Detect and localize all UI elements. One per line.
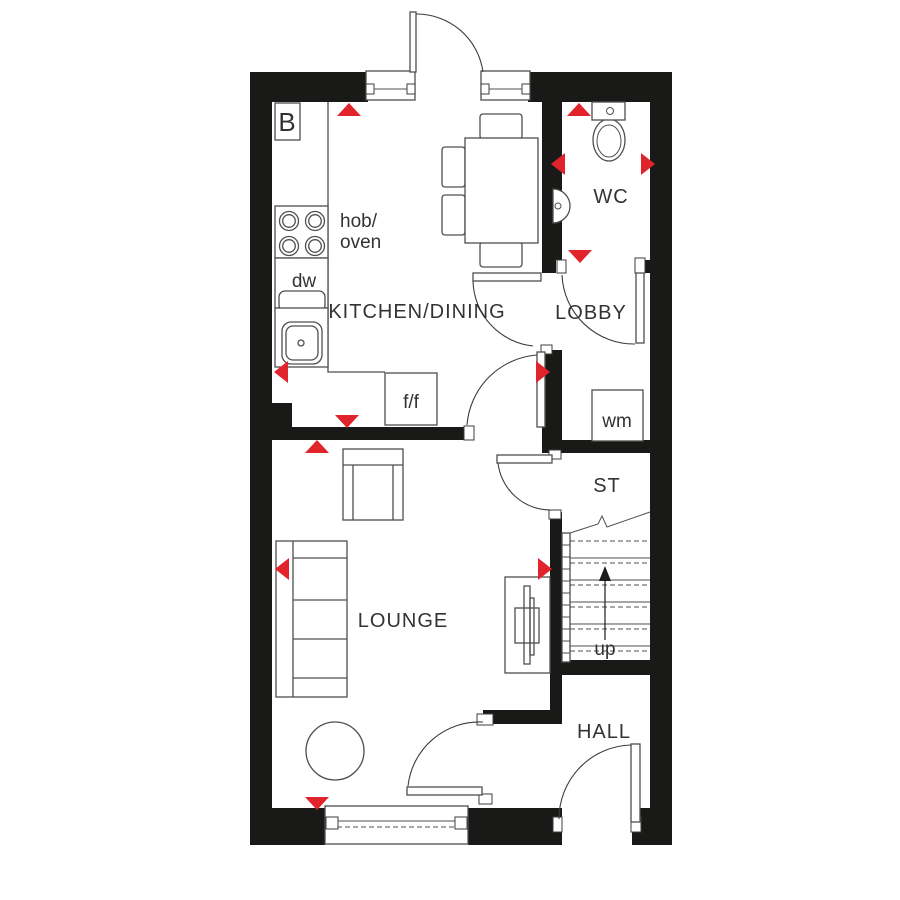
label-fridge-freezer: f/f	[403, 392, 420, 413]
door-store	[497, 455, 552, 510]
wash-basin	[553, 189, 570, 223]
dimension-marker-down	[568, 250, 592, 263]
stair-break-line	[570, 512, 650, 533]
kitchen-fixtures	[275, 102, 538, 425]
toilet	[592, 102, 625, 161]
stair-treads	[570, 541, 650, 651]
label-hob-line2: oven	[340, 232, 381, 253]
dimension-marker-up	[567, 103, 591, 116]
floor-plan: KITCHEN/DINING LOBBY WC LOUNGE HALL ST B…	[0, 0, 900, 900]
label-stairs-up: up	[594, 639, 615, 660]
window-kitchen-left	[366, 71, 415, 100]
tv-unit	[505, 577, 550, 673]
label-washing-machine: wm	[601, 411, 632, 432]
dining-table	[465, 138, 538, 243]
dining-chair	[442, 147, 465, 187]
dining-chair	[480, 114, 522, 139]
stair-stringer	[562, 533, 570, 662]
room-label-hall: HALL	[577, 721, 631, 743]
hob-oven-unit	[275, 206, 328, 258]
window-lounge	[325, 806, 468, 844]
dimension-marker-up	[305, 440, 329, 453]
door-kitchen-lounge	[467, 352, 545, 427]
window-kitchen-right	[481, 71, 530, 100]
floor-plan-page: KITCHEN/DINING LOBBY WC LOUNGE HALL ST B…	[0, 0, 900, 900]
side-table	[306, 722, 364, 780]
label-hob-line1: hob/	[340, 211, 378, 232]
up-arrow	[599, 566, 611, 640]
armchair	[343, 449, 403, 520]
dining-set	[442, 114, 538, 267]
label-boiler: B	[278, 107, 295, 137]
room-label-store: ST	[593, 475, 621, 497]
door-lounge-hall	[407, 722, 483, 795]
door-front	[559, 744, 640, 822]
room-label-lobby: LOBBY	[555, 302, 627, 324]
door-garden	[410, 12, 483, 72]
room-label-wc: WC	[593, 186, 628, 208]
label-dishwasher: dw	[292, 271, 317, 292]
dimension-marker-down	[335, 415, 359, 428]
sink-unit	[275, 308, 328, 367]
room-label-lounge: LOUNGE	[358, 610, 448, 632]
dimension-marker-up	[337, 103, 361, 116]
room-label-kitchen-dining: KITCHEN/DINING	[328, 301, 505, 323]
dining-chair	[442, 195, 465, 235]
dining-chair	[480, 242, 522, 267]
